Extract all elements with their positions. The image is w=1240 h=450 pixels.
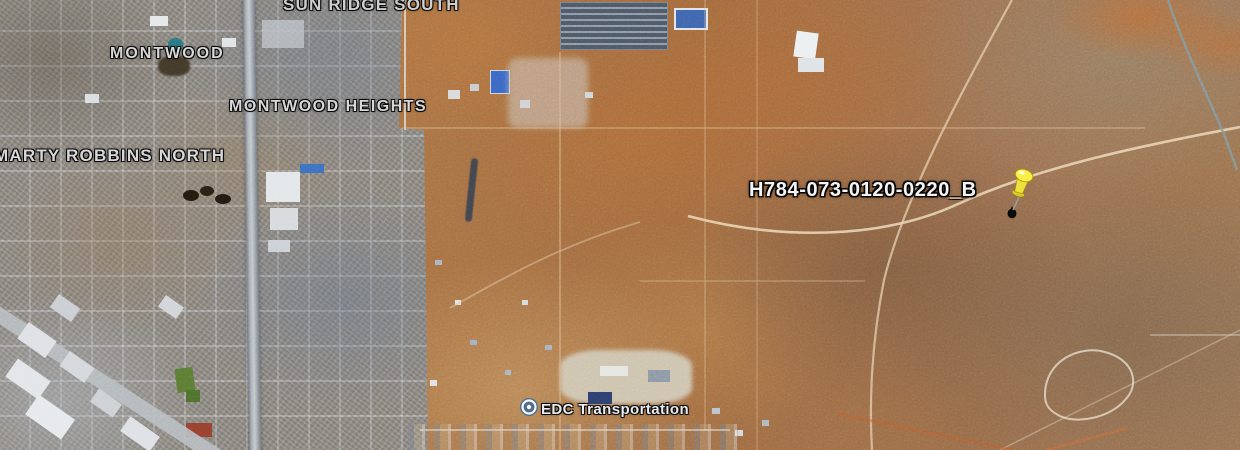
ranch-house [522,300,528,305]
white-building [798,58,824,72]
business-poi-label[interactable]: EDC Transportation [541,401,689,418]
neighborhood-label-montwood-heights: MONTWOOD HEIGHTS [229,98,427,116]
ranch-house [470,340,477,345]
white-building [793,31,818,60]
ranch-house [435,260,442,265]
urban-area-west [0,0,432,450]
small-structure [585,92,593,98]
placemark-label[interactable]: H784-073-0120-0220_B [749,179,977,202]
commercial-building [262,20,304,48]
small-structure [520,100,530,108]
warehouse-building [270,208,298,230]
industrial-pad [508,58,588,128]
ranch-house [505,370,511,375]
ranch-house [762,420,769,426]
blue-striped-building [300,164,324,173]
neighborhood-label-montwood: MONTWOOD [110,45,225,63]
truck-yard-building [648,370,670,382]
ranch-house [455,300,461,305]
satellite-map[interactable]: SUN RIDGE SOUTH MONTWOOD MONTWOOD HEIGHT… [0,0,1240,450]
neighborhood-label-sun-ridge-south: SUN RIDGE SOUTH [283,0,460,15]
rural-lot-strip [408,424,738,450]
retention-pond [215,194,231,204]
neighborhood-label-marty-robbins-north: MARTY ROBBINS NORTH [0,146,225,166]
white-building [150,16,168,26]
warehouse-building [266,172,300,202]
ranch-house [430,380,437,386]
warehouse-building [268,240,290,252]
blue-roof-building [674,8,708,30]
park-field [186,390,200,402]
business-poi-circle-icon[interactable] [518,396,540,418]
small-structure [470,84,479,91]
retention-pond [200,186,214,196]
residential-block-under-construction [560,2,668,50]
blue-roof-building [490,70,510,94]
transport-yard-pad [560,350,692,404]
white-building [85,94,99,103]
yellow-pushpin-icon[interactable] [990,165,1040,223]
truck-yard-building [600,366,628,376]
ranch-house [545,345,552,350]
ranch-house [712,408,720,414]
retention-pond [183,190,199,201]
small-structure [448,90,460,99]
